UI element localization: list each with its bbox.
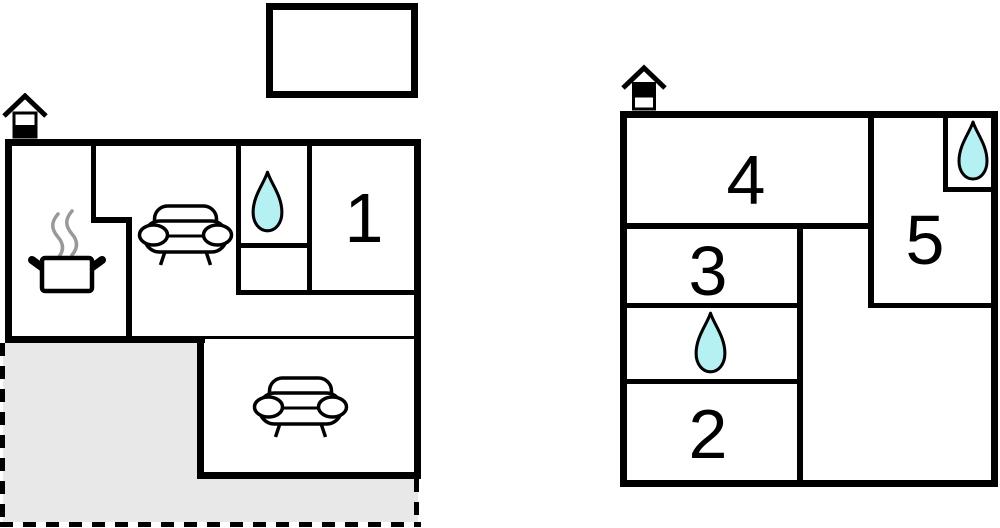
room-label-2: 2	[668, 398, 748, 470]
interior-wall	[627, 379, 802, 384]
floorplan-canvas: 1	[0, 0, 1000, 528]
interior-wall	[868, 118, 874, 308]
room-label-5: 5	[885, 204, 965, 276]
interior-wall	[943, 118, 948, 192]
water-drop-icon	[692, 311, 729, 375]
room-label-3: 3	[668, 235, 748, 307]
interior-wall	[627, 223, 873, 229]
interior-wall	[943, 187, 991, 192]
interior-wall	[868, 303, 991, 308]
water-drop-icon	[955, 120, 991, 182]
right-floor-plan: 4 5 3 2	[0, 0, 1000, 528]
interior-wall	[797, 228, 803, 480]
chimney-icon	[621, 63, 667, 111]
room-label-4: 4	[706, 144, 786, 216]
